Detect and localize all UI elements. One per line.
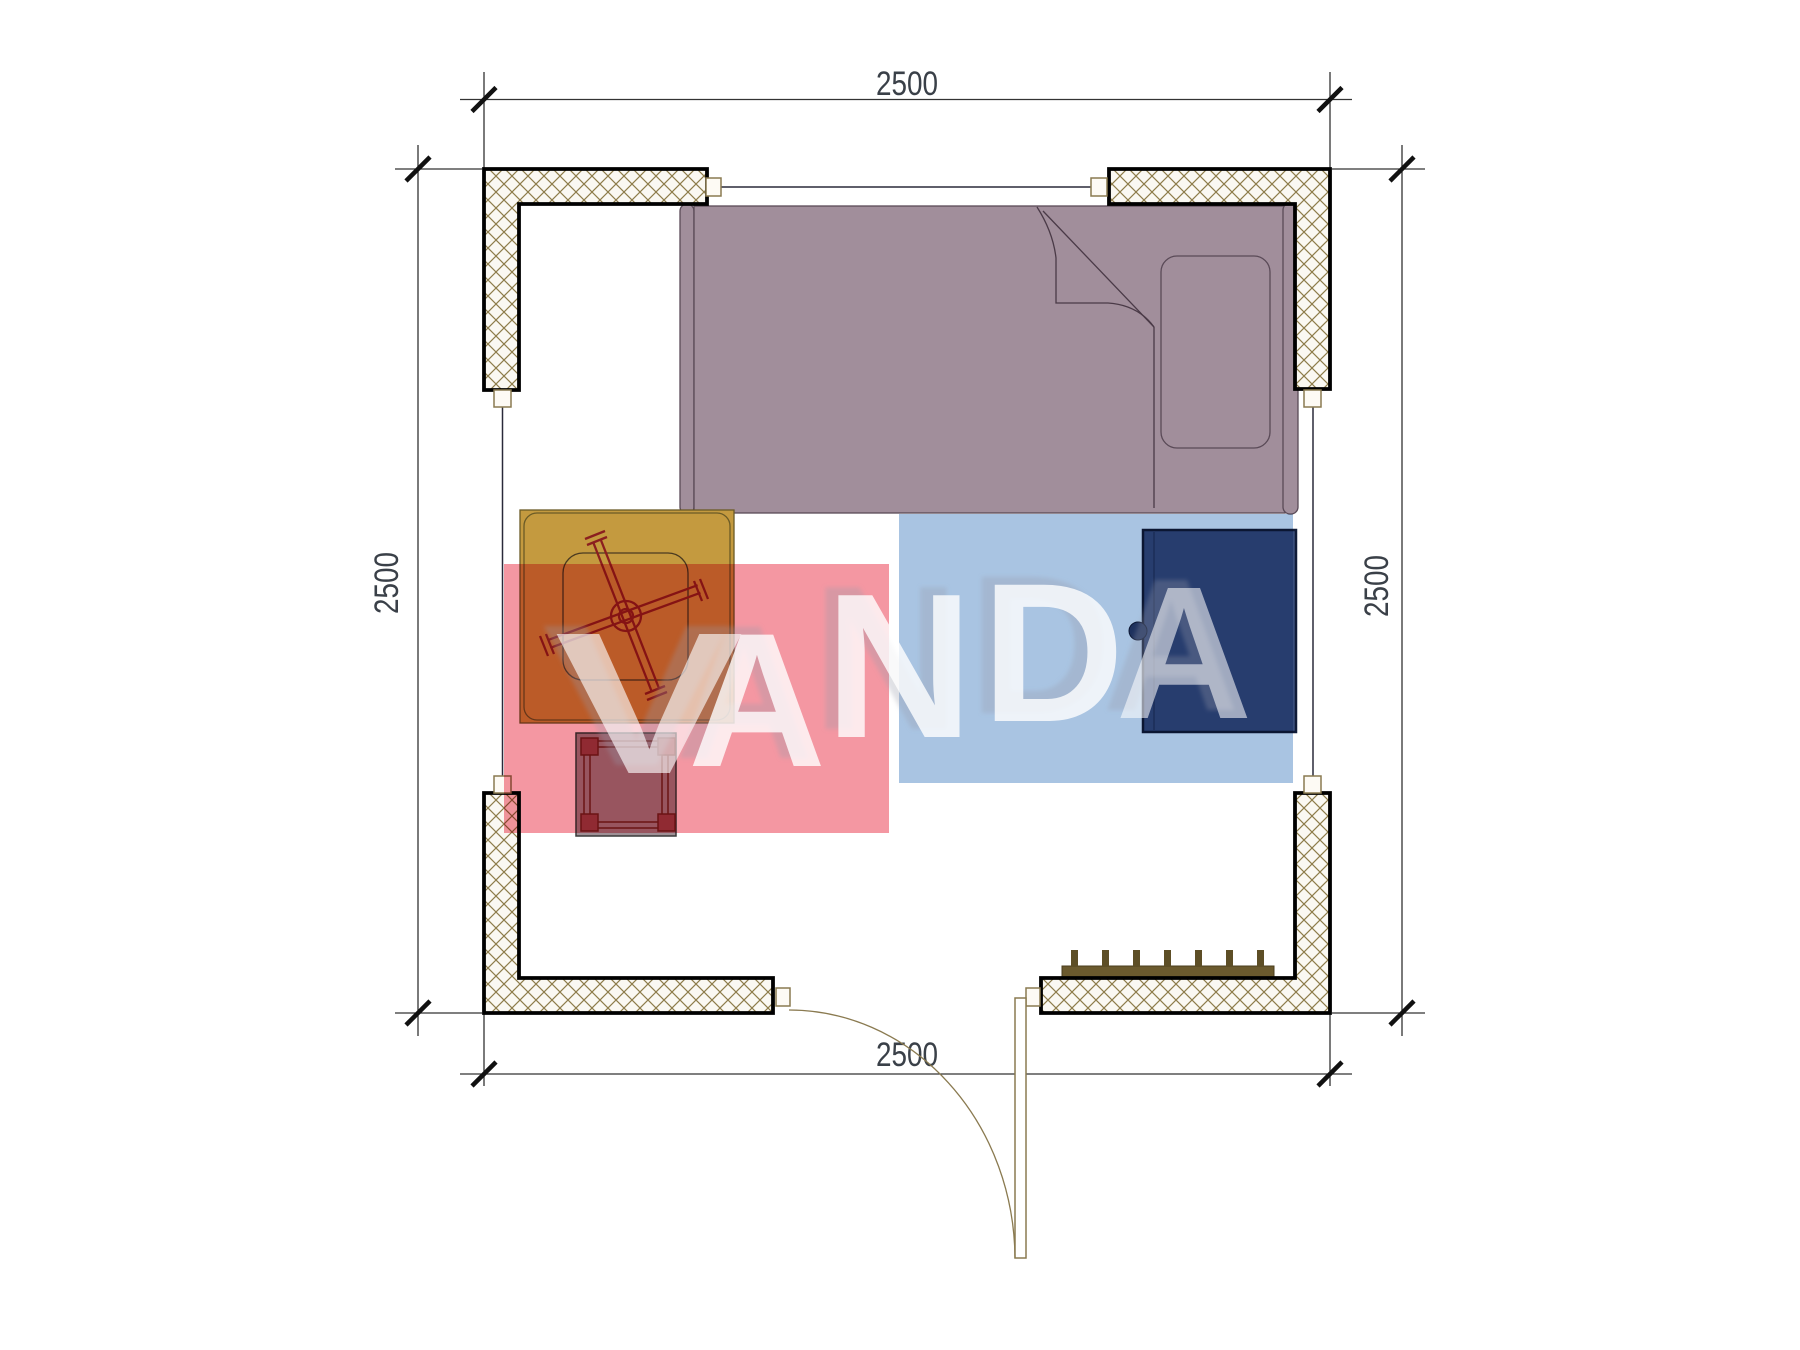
svg-text:A: A — [1116, 548, 1253, 759]
svg-text:2500: 2500 — [876, 65, 938, 103]
svg-text:N: N — [825, 551, 974, 781]
svg-text:2500: 2500 — [1358, 555, 1396, 617]
svg-text:2500: 2500 — [876, 1036, 938, 1074]
svg-text:2500: 2500 — [368, 552, 406, 614]
svg-text:A: A — [688, 594, 826, 807]
svg-text:D: D — [982, 542, 1125, 763]
